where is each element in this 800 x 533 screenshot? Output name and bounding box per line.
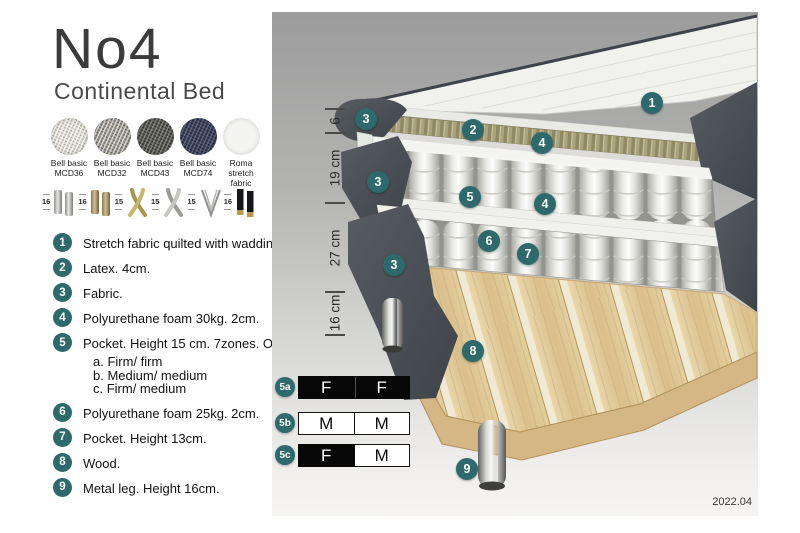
- callout-5: 5: [459, 186, 481, 208]
- leg-options: 16 16 15 15 15 16: [42, 186, 260, 218]
- info-column: No4 Continental Bed Bell basicMCD36 Bell…: [0, 0, 272, 533]
- measure-dash: [188, 194, 195, 195]
- leg-height: 15: [187, 197, 195, 207]
- dimension-tick: [325, 108, 345, 110]
- feature-list: 1Stretch fabric quilted with wadding. 2L…: [53, 233, 268, 503]
- measure-dash: [188, 209, 195, 210]
- firmness-row-label: 5c: [275, 445, 295, 465]
- feature-options: a. Firm/ firm b. Medium/ medium c. Firm/…: [93, 355, 268, 396]
- firmness-cell: M: [355, 412, 411, 435]
- feature-text: Latex. 4cm.: [83, 258, 150, 276]
- crossed-gold-legs-icon: [124, 186, 151, 218]
- feature-item: 1Stretch fabric quilted with wadding.: [53, 233, 268, 252]
- leg-option: 16: [224, 186, 260, 218]
- cylinder-silver-legs-icon: [51, 186, 78, 218]
- feature-number-badge: 9: [53, 478, 72, 497]
- fabric-code: MCD36: [49, 169, 89, 179]
- feature-text: Polyurethane foam 30kg. 2cm.: [83, 308, 259, 326]
- feature-item: 8Wood.: [53, 453, 268, 472]
- callout-2: 2: [462, 119, 484, 141]
- callout-4: 4: [531, 132, 553, 154]
- firmness-cell: F: [298, 376, 355, 399]
- firmness-cell: M: [355, 444, 411, 467]
- measure-dash: [152, 209, 159, 210]
- fabric-swatch-image: [223, 118, 260, 155]
- fabric-swatch: Bell basicMCD36: [49, 118, 89, 188]
- feature-text: Fabric.: [83, 283, 123, 301]
- dimension-label: 19 cm: [328, 150, 343, 187]
- dimension-tick: [325, 202, 345, 204]
- product-sheet: No4 Continental Bed Bell basicMCD36 Bell…: [0, 0, 800, 533]
- feature-text: Wood.: [83, 453, 120, 471]
- firmness-bar-5c: F M: [298, 444, 410, 467]
- callout-7: 7: [517, 243, 539, 265]
- dimension-tick: [325, 291, 345, 293]
- callout-9: 9: [456, 458, 478, 480]
- firmness-cell: F: [355, 376, 411, 399]
- fabric-swatch-image: [137, 118, 174, 155]
- dimension-tick: [325, 334, 345, 336]
- fabric-code: MCD32: [92, 169, 132, 179]
- feature-option: a. Firm/ firm: [93, 355, 268, 369]
- leg-option: 16: [42, 186, 78, 218]
- hairpin-leg-icon: [197, 186, 224, 218]
- fabric-code: MCD74: [178, 169, 218, 179]
- fabric-code: MCD43: [135, 169, 175, 179]
- product-title: No4: [52, 16, 163, 82]
- product-subtitle: Continental Bed: [54, 78, 225, 105]
- feature-number-badge: 2: [53, 258, 72, 277]
- firmness-bar-5b: M M: [298, 412, 410, 435]
- leg-height: 15: [151, 197, 159, 207]
- feature-item: 4Polyurethane foam 30kg. 2cm.: [53, 308, 268, 327]
- feature-item: 6Polyurethane foam 25kg. 2cm.: [53, 403, 268, 422]
- fabric-swatch: Bell basicMCD32: [92, 118, 132, 188]
- callout-3: 3: [355, 108, 377, 130]
- firmness-row-label: 5a: [275, 377, 295, 397]
- firmness-bar-5a: F F: [298, 376, 410, 399]
- feature-number-badge: 8: [53, 453, 72, 472]
- measure-dash: [152, 194, 159, 195]
- leg-height: 16: [42, 197, 50, 207]
- leg-height: 15: [115, 197, 123, 207]
- dimension-tick: [325, 132, 345, 134]
- feature-option: c. Firm/ medium: [93, 382, 268, 396]
- measure-dash: [115, 194, 122, 195]
- feature-option: b. Medium/ medium: [93, 369, 268, 383]
- feature-item: 3Fabric.: [53, 283, 268, 302]
- crossed-silver-legs-icon: [160, 186, 187, 218]
- measure-dash: [115, 209, 122, 210]
- feature-number-badge: 5: [53, 333, 72, 352]
- callout-1: 1: [641, 92, 663, 114]
- leg-foot-cap: [479, 482, 505, 491]
- feature-item: 9Metal leg. Height 16cm.: [53, 478, 268, 497]
- feature-text: Pocket. Height 13cm.: [83, 428, 207, 446]
- measure-dash: [43, 209, 50, 210]
- leg-height: 16: [224, 197, 232, 207]
- fabric-swatches: Bell basicMCD36 Bell basicMCD32 Bell bas…: [49, 118, 261, 188]
- firmness-row-label: 5b: [275, 413, 295, 433]
- fabric-swatch: Bell basicMCD43: [135, 118, 175, 188]
- measure-dash: [79, 209, 86, 210]
- black-brass-legs-icon: [233, 186, 260, 218]
- feature-item: 2Latex. 4cm.: [53, 258, 268, 277]
- fabric-swatch-image: [51, 118, 88, 155]
- metal-leg-back: [382, 298, 403, 350]
- dimension-label: 6: [328, 117, 343, 125]
- feature-number-badge: 7: [53, 428, 72, 447]
- fabric-swatch: Romastretch fabric: [221, 118, 261, 188]
- leg-option: 15: [187, 186, 223, 218]
- callout-6: 6: [478, 230, 500, 252]
- dimension-label: 16 cm: [328, 295, 343, 332]
- feature-text: Stretch fabric quilted with wadding.: [83, 233, 284, 251]
- bed-diagram-panel: 6 19 cm 27 cm 16 cm 1 2 3 4 3 5 4 6 7 3 …: [272, 12, 758, 516]
- cylinder-brass-legs-icon: [88, 186, 115, 218]
- feature-text: Polyurethane foam 25kg. 2cm.: [83, 403, 259, 421]
- leg-option: 15: [151, 186, 187, 218]
- measure-dash: [43, 194, 50, 195]
- callout-4: 4: [534, 193, 556, 215]
- version-stamp: 2022.04: [712, 496, 752, 508]
- feature-number-badge: 3: [53, 283, 72, 302]
- leg-foot-cap: [383, 346, 403, 353]
- feature-number-badge: 4: [53, 308, 72, 327]
- leg-option: 15: [115, 186, 151, 218]
- metal-leg-front: [478, 420, 506, 488]
- measure-dash: [79, 194, 86, 195]
- feature-number-badge: 1: [53, 233, 72, 252]
- measure-dash: [224, 194, 231, 195]
- feature-number-badge: 6: [53, 403, 72, 422]
- fabric-swatch-image: [180, 118, 217, 155]
- fabric-swatch: Bell basicMCD74: [178, 118, 218, 188]
- measure-dash: [224, 209, 231, 210]
- callout-8: 8: [462, 340, 484, 362]
- callout-3: 3: [383, 254, 405, 276]
- leg-option: 16: [78, 186, 114, 218]
- leg-height: 16: [78, 197, 86, 207]
- fabric-swatch-image: [94, 118, 131, 155]
- dimension-label: 27 cm: [328, 230, 343, 267]
- firmness-cell: M: [298, 412, 355, 435]
- feature-item: 5Pocket. Height 15 cm. 7zones. Option:: [53, 333, 268, 352]
- feature-text: Metal leg. Height 16cm.: [83, 478, 220, 496]
- bed-cutaway-illustration: [272, 12, 758, 516]
- callout-3: 3: [367, 171, 389, 193]
- firmness-cell: F: [298, 444, 355, 467]
- feature-item: 7Pocket. Height 13cm.: [53, 428, 268, 447]
